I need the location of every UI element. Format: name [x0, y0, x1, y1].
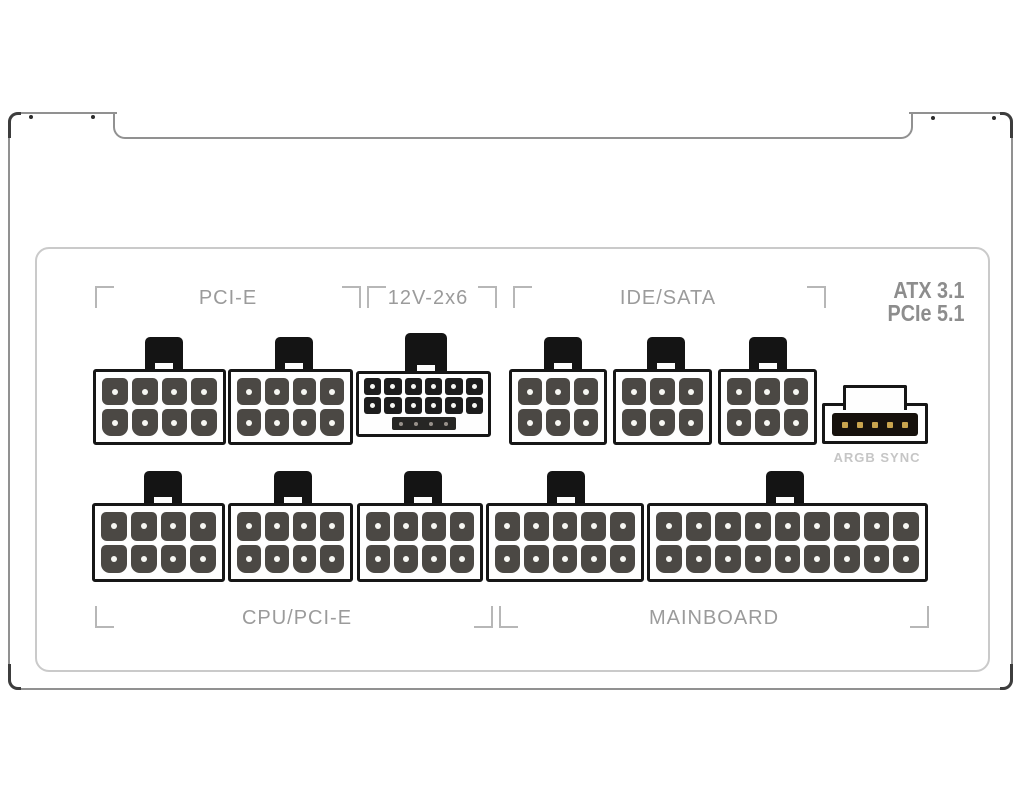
connector-ide-sata-3 [718, 369, 817, 445]
pin-contact-dot [301, 389, 307, 395]
pin-contact-dot [793, 420, 799, 426]
pin-contact-dot [329, 523, 335, 529]
pin-row [518, 409, 598, 436]
pin-socket [425, 378, 442, 395]
connector-12v-2x6 [356, 371, 491, 437]
pin-contact-dot [903, 523, 909, 529]
pin-socket [650, 378, 674, 405]
pin-contact-dot [631, 389, 637, 395]
pin-socket [132, 409, 158, 436]
pin-socket [394, 512, 418, 541]
connector-ide-sata-1 [509, 369, 607, 445]
pin-socket [495, 512, 520, 541]
pin-socket [622, 378, 646, 405]
pin-socket [384, 378, 401, 395]
pin-socket [650, 409, 674, 436]
pin-contact-dot [329, 420, 335, 426]
pin-socket [237, 409, 261, 436]
pin-contact-dot [170, 523, 176, 529]
pin-row [518, 378, 598, 405]
pin-socket [574, 378, 598, 405]
pin-contact-dot [527, 420, 533, 426]
connector-cpu-1 [92, 503, 225, 582]
pin-contact-dot [583, 420, 589, 426]
pin-socket [191, 409, 217, 436]
pin-socket [320, 409, 344, 436]
pin-contact-dot [170, 556, 176, 562]
pin-socket [422, 545, 446, 574]
pin-socket [784, 409, 808, 436]
pin-socket [190, 512, 216, 541]
pin-socket [834, 512, 860, 541]
pin-socket [553, 545, 578, 574]
pin-socket [524, 545, 549, 574]
pin-row [622, 409, 703, 436]
pin-socket [132, 378, 158, 405]
pin-row [366, 545, 474, 574]
connector-housing [647, 503, 928, 582]
pin-contact-dot [591, 523, 597, 529]
pin-row [366, 512, 474, 541]
pin-contact-dot [591, 556, 597, 562]
pin-row [102, 409, 217, 436]
pin-contact-dot [431, 384, 436, 389]
pin-row [727, 409, 808, 436]
connector-housing [718, 369, 817, 445]
psu-modular-panel-photo: PCI-E 12V-2x6 IDE/SATA CPU/PCI-E MAINBOA… [0, 0, 1024, 800]
sideband-dot [414, 422, 418, 426]
pin-contact-dot [111, 556, 117, 562]
pin-socket [679, 409, 703, 436]
pin-socket [445, 397, 462, 414]
pin-contact-dot [403, 556, 409, 562]
pin-contact-dot [171, 389, 177, 395]
pin-contact-dot [555, 389, 561, 395]
pin-socket [715, 545, 741, 574]
pin-socket [445, 378, 462, 395]
pin-contact-dot [329, 389, 335, 395]
pin-row [727, 378, 808, 405]
pin-contact-dot [844, 556, 850, 562]
pin-socket [755, 378, 779, 405]
pin-socket [293, 545, 317, 574]
pin-socket [622, 409, 646, 436]
pin-socket [610, 545, 635, 574]
pin-row [364, 378, 483, 395]
pin-contact-dot [659, 389, 665, 395]
pin-socket [784, 378, 808, 405]
pin-socket [364, 397, 381, 414]
pin-contact-dot [274, 389, 280, 395]
pin-contact-dot [696, 556, 702, 562]
pin-contact-dot [459, 523, 465, 529]
pin-contact-dot [301, 523, 307, 529]
pin-socket [237, 378, 261, 405]
pin-socket [686, 545, 712, 574]
pin-contact-dot [736, 420, 742, 426]
pin-socket [265, 409, 289, 436]
pin-contact-dot [764, 420, 770, 426]
pin-socket [727, 409, 751, 436]
pin-contact-dot [814, 556, 820, 562]
pin-socket [265, 378, 289, 405]
pin-contact-dot [171, 420, 177, 426]
pin-socket [834, 545, 860, 574]
pin-socket [162, 409, 188, 436]
pin-contact-dot [431, 556, 437, 562]
pin-socket [422, 512, 446, 541]
pin-row [237, 378, 344, 405]
connector-housing [509, 369, 607, 445]
pin-socket [804, 512, 830, 541]
pin-socket [524, 512, 549, 541]
pin-socket [893, 545, 919, 574]
connector-mainboard-1 [486, 503, 644, 582]
pin-contact-dot [431, 523, 437, 529]
pin-contact-dot [141, 523, 147, 529]
pin-socket [450, 545, 474, 574]
pin-contact-dot [688, 389, 694, 395]
pin-contact-dot [631, 420, 637, 426]
pin-contact-dot [451, 403, 456, 408]
pin-socket [161, 512, 187, 541]
connector-ide-sata-2 [613, 369, 712, 445]
pin-socket [686, 512, 712, 541]
pin-row [495, 512, 635, 541]
pin-contact-dot [246, 389, 252, 395]
pin-contact-dot [472, 403, 477, 408]
sideband-pins [392, 417, 456, 430]
pin-socket [775, 545, 801, 574]
connector-pcie-1 [93, 369, 226, 445]
pin-contact-dot [874, 523, 880, 529]
connector-argb-sync [822, 403, 928, 444]
pin-socket [131, 512, 157, 541]
pin-socket [366, 545, 390, 574]
pin-socket [715, 512, 741, 541]
pin-socket [320, 378, 344, 405]
pin-socket [893, 512, 919, 541]
pin-contact-dot [411, 403, 416, 408]
pin-contact-dot [659, 420, 665, 426]
pin-contact-dot [583, 389, 589, 395]
pin-socket [727, 378, 751, 405]
pin-socket [574, 409, 598, 436]
connector-housing [92, 503, 225, 582]
pin-contact-dot [246, 420, 252, 426]
pin-contact-dot [755, 523, 761, 529]
pin-row [364, 397, 483, 414]
pin-contact-dot [451, 384, 456, 389]
pin-socket [394, 545, 418, 574]
pin-contact-dot [411, 384, 416, 389]
pin-socket [864, 512, 890, 541]
pin-socket [804, 545, 830, 574]
pin-socket [320, 512, 344, 541]
pin-contact-dot [472, 384, 477, 389]
pin-contact-dot [688, 420, 694, 426]
pin-socket [546, 409, 570, 436]
pin-contact-dot [431, 403, 436, 408]
pin-contact-dot [874, 556, 880, 562]
pin-socket [293, 409, 317, 436]
pin-contact-dot [696, 523, 702, 529]
argb-pin [872, 422, 878, 428]
pin-contact-dot [785, 556, 791, 562]
pin-socket [466, 378, 483, 395]
pin-socket [162, 378, 188, 405]
pin-socket [293, 378, 317, 405]
pin-socket [745, 545, 771, 574]
pin-contact-dot [329, 556, 335, 562]
pin-contact-dot [112, 420, 118, 426]
pin-contact-dot [403, 523, 409, 529]
sideband-dot [399, 422, 403, 426]
sideband-dot [444, 422, 448, 426]
pin-socket [679, 378, 703, 405]
pin-contact-dot [375, 523, 381, 529]
connector-housing [228, 503, 353, 582]
pin-contact-dot [246, 523, 252, 529]
pin-contact-dot [504, 556, 510, 562]
pin-contact-dot [142, 389, 148, 395]
pin-socket [518, 409, 542, 436]
pin-socket [190, 545, 216, 574]
pin-socket [293, 512, 317, 541]
pin-socket [495, 545, 520, 574]
connector-mainboard-2 [647, 503, 928, 582]
pin-contact-dot [555, 420, 561, 426]
pin-contact-dot [141, 556, 147, 562]
pin-contact-dot [142, 420, 148, 426]
pin-socket [581, 512, 606, 541]
pin-contact-dot [274, 420, 280, 426]
pin-contact-dot [666, 556, 672, 562]
pin-row [656, 545, 919, 574]
pin-socket [755, 409, 779, 436]
pin-contact-dot [112, 389, 118, 395]
pin-contact-dot [370, 403, 375, 408]
pin-contact-dot [390, 384, 395, 389]
pin-socket [102, 409, 128, 436]
pin-socket [265, 512, 289, 541]
pin-row [102, 378, 217, 405]
pin-socket [191, 378, 217, 405]
pin-contact-dot [111, 523, 117, 529]
pin-contact-dot [201, 420, 207, 426]
pin-row [237, 545, 344, 574]
pin-contact-dot [301, 556, 307, 562]
pin-contact-dot [301, 420, 307, 426]
pin-row [101, 545, 216, 574]
connector-group [0, 0, 1024, 800]
pin-socket [425, 397, 442, 414]
pin-socket [366, 512, 390, 541]
pin-socket [450, 512, 474, 541]
pin-socket [237, 545, 261, 574]
pin-socket [364, 378, 381, 395]
pin-contact-dot [785, 523, 791, 529]
argb-pin [842, 422, 848, 428]
pin-socket [161, 545, 187, 574]
pin-contact-dot [755, 556, 761, 562]
pin-contact-dot [764, 389, 770, 395]
pin-socket [610, 512, 635, 541]
pin-contact-dot [666, 523, 672, 529]
pin-socket [775, 512, 801, 541]
pin-contact-dot [390, 403, 395, 408]
argb-pin [857, 422, 863, 428]
pin-socket [237, 512, 261, 541]
connector-cpu-2 [228, 503, 353, 582]
pin-contact-dot [370, 384, 375, 389]
argb-key-tab [843, 385, 907, 410]
connector-housing [357, 503, 483, 582]
pin-contact-dot [793, 389, 799, 395]
connector-housing [486, 503, 644, 582]
pin-socket [102, 378, 128, 405]
pin-contact-dot [201, 389, 207, 395]
pin-socket [656, 545, 682, 574]
pin-socket [101, 545, 127, 574]
pin-socket [101, 512, 127, 541]
pin-row [237, 512, 344, 541]
pin-socket [384, 397, 401, 414]
pin-contact-dot [200, 523, 206, 529]
connector-housing [613, 369, 712, 445]
pin-contact-dot [620, 556, 626, 562]
pin-contact-dot [459, 556, 465, 562]
pin-row [622, 378, 703, 405]
pin-row [495, 545, 635, 574]
sideband-dot [429, 422, 433, 426]
pin-contact-dot [725, 523, 731, 529]
pin-row [237, 409, 344, 436]
argb-pin-slot [832, 413, 918, 436]
pin-contact-dot [533, 556, 539, 562]
pin-socket [466, 397, 483, 414]
connector-pcie-2 [228, 369, 353, 445]
pin-contact-dot [620, 523, 626, 529]
pin-contact-dot [562, 523, 568, 529]
pin-socket [265, 545, 289, 574]
pin-contact-dot [736, 389, 742, 395]
pin-socket [405, 397, 422, 414]
pin-row [656, 512, 919, 541]
pin-contact-dot [903, 556, 909, 562]
pin-socket [131, 545, 157, 574]
pin-socket [745, 512, 771, 541]
pin-socket [864, 545, 890, 574]
pin-contact-dot [844, 523, 850, 529]
pin-contact-dot [533, 523, 539, 529]
argb-pin [902, 422, 908, 428]
pin-contact-dot [562, 556, 568, 562]
pin-contact-dot [246, 556, 252, 562]
pin-socket [546, 378, 570, 405]
pin-contact-dot [527, 389, 533, 395]
pin-contact-dot [504, 523, 510, 529]
argb-pin [887, 422, 893, 428]
connector-housing [93, 369, 226, 445]
pin-contact-dot [375, 556, 381, 562]
pin-socket [581, 545, 606, 574]
pin-socket [405, 378, 422, 395]
pin-row [101, 512, 216, 541]
pin-contact-dot [274, 556, 280, 562]
connector-housing [228, 369, 353, 445]
pin-contact-dot [200, 556, 206, 562]
pin-socket [320, 545, 344, 574]
pin-contact-dot [725, 556, 731, 562]
connector-cpu-3 [357, 503, 483, 582]
pin-contact-dot [814, 523, 820, 529]
pin-socket [518, 378, 542, 405]
pin-contact-dot [274, 523, 280, 529]
pin-socket [656, 512, 682, 541]
pin-socket [553, 512, 578, 541]
connector-housing [356, 371, 491, 437]
